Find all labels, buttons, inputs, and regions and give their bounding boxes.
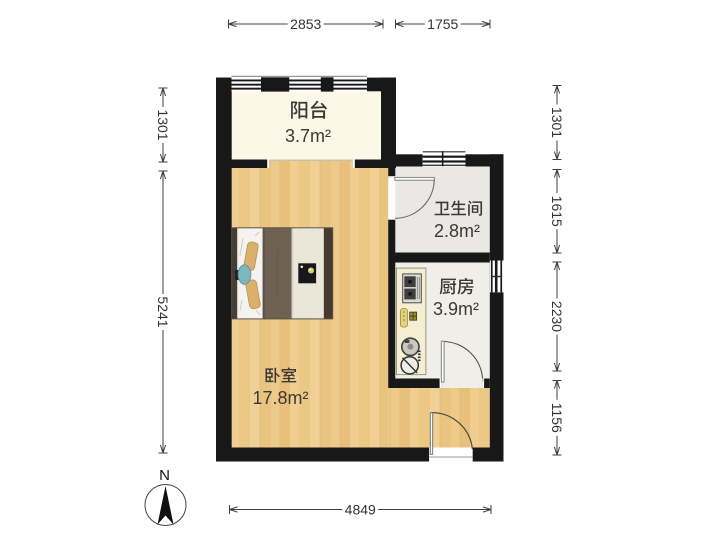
svg-text:2853: 2853 (290, 16, 321, 32)
svg-text:17.8m²: 17.8m² (252, 388, 308, 408)
svg-text:1615: 1615 (549, 196, 565, 227)
svg-text:4849: 4849 (345, 501, 376, 517)
svg-text:3.7m²: 3.7m² (285, 126, 331, 146)
svg-text:1301: 1301 (549, 107, 565, 138)
svg-text:3.9m²: 3.9m² (433, 299, 479, 319)
svg-text:2230: 2230 (549, 301, 565, 332)
svg-text:2.8m²: 2.8m² (434, 221, 480, 241)
svg-text:5241: 5241 (155, 296, 171, 327)
svg-text:1301: 1301 (155, 109, 171, 140)
svg-text:1156: 1156 (549, 403, 565, 433)
svg-text:N: N (159, 467, 170, 484)
svg-text:1755: 1755 (427, 16, 458, 32)
